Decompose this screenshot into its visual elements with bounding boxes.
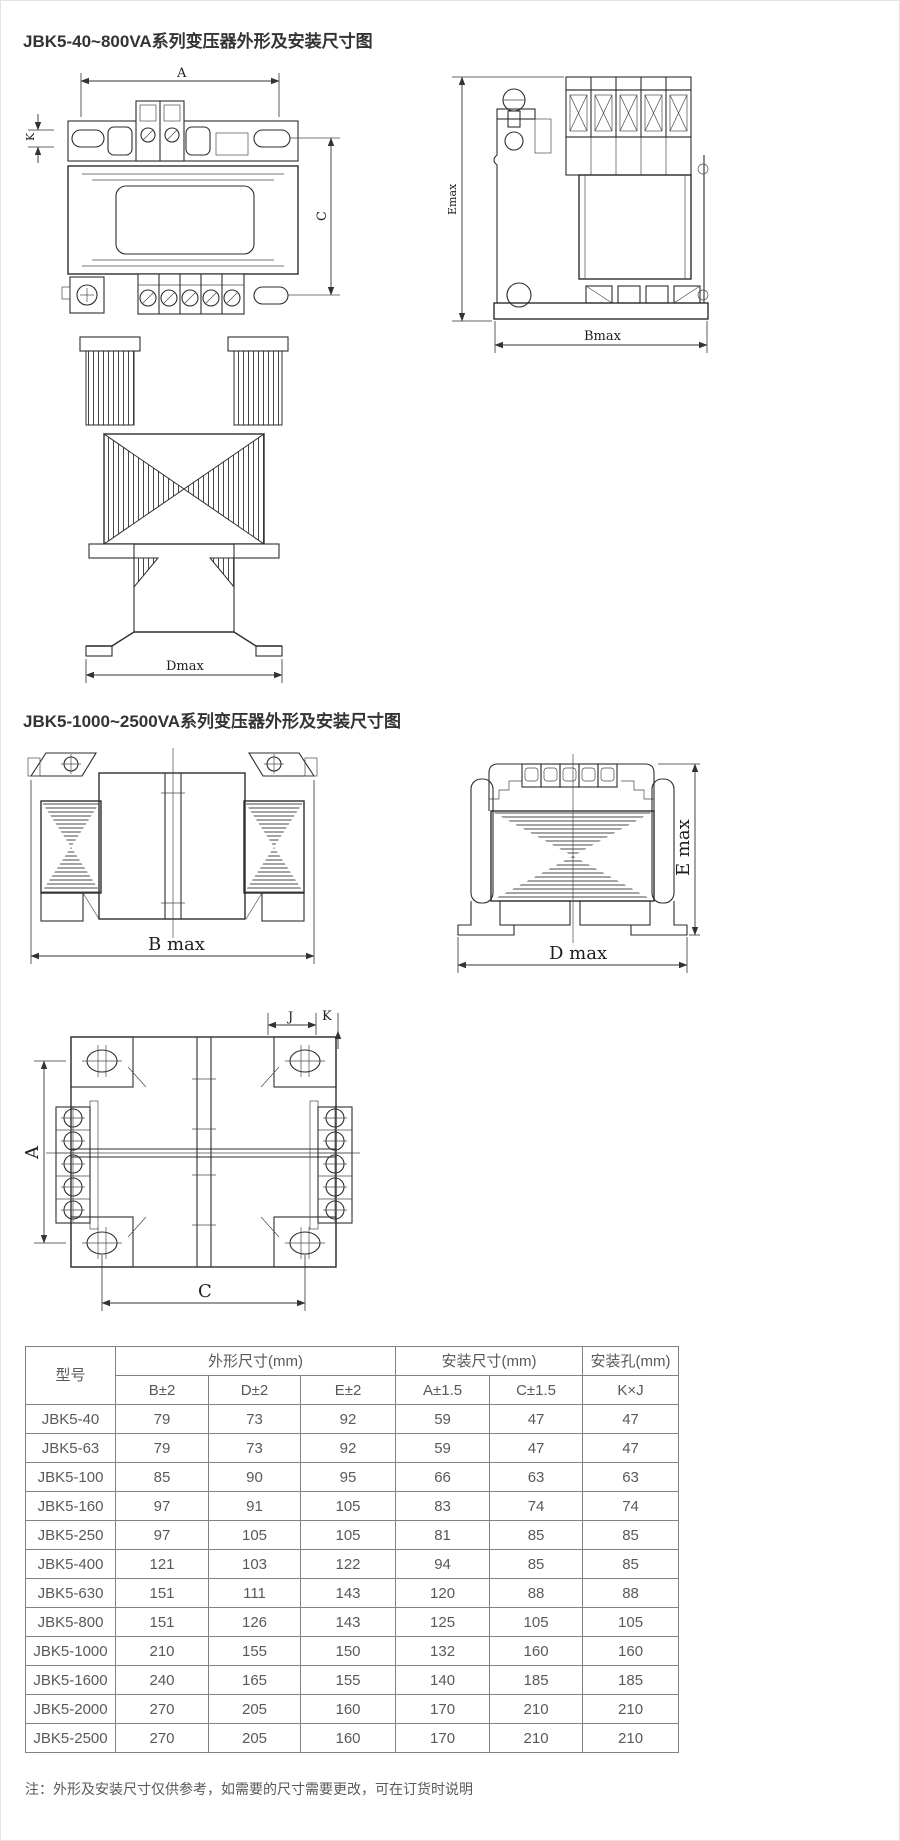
terminal-clamp-icons [570, 95, 687, 131]
value-cell-d: 103 [209, 1550, 301, 1579]
value-cell-e: 95 [301, 1463, 396, 1492]
value-cell-kxj: 47 [583, 1434, 679, 1463]
drawing-coil-view-small: Dmax [46, 329, 336, 694]
value-cell-b: 151 [116, 1608, 209, 1637]
value-cell-d: 205 [209, 1695, 301, 1724]
value-cell-d: 73 [209, 1434, 301, 1463]
value-cell-a: 120 [396, 1579, 490, 1608]
column-header-a: A±1.5 [396, 1376, 490, 1405]
value-cell-kxj: 105 [583, 1608, 679, 1637]
table-row: JBK5-630 151 111 143 120 88 88 [26, 1579, 679, 1608]
value-cell-d: 126 [209, 1608, 301, 1637]
value-cell-d: 90 [209, 1463, 301, 1492]
dim-label-dmax-lg: D max [549, 943, 607, 964]
model-cell: JBK5-160 [26, 1492, 116, 1521]
value-cell-kxj: 88 [583, 1579, 679, 1608]
table-row: JBK5-800 151 126 143 125 105 105 [26, 1608, 679, 1637]
value-cell-kxj: 63 [583, 1463, 679, 1492]
value-cell-d: 105 [209, 1521, 301, 1550]
terminal-strip-left [56, 1101, 98, 1229]
value-cell-kxj: 85 [583, 1521, 679, 1550]
column-header-model: 型号 [26, 1347, 116, 1405]
section1-title: JBK5-40~800VA系列变压器外形及安装尺寸图 [23, 27, 373, 52]
model-cell: JBK5-250 [26, 1521, 116, 1550]
value-cell-c: 47 [490, 1434, 583, 1463]
model-cell: JBK5-800 [26, 1608, 116, 1637]
value-cell-d: 91 [209, 1492, 301, 1521]
value-cell-e: 122 [301, 1550, 396, 1579]
model-cell: JBK5-400 [26, 1550, 116, 1579]
value-cell-c: 85 [490, 1550, 583, 1579]
dim-label-k2: K [322, 1009, 332, 1024]
value-cell-b: 85 [116, 1463, 209, 1492]
dimension-table: 型号 外形尺寸(mm) 安装尺寸(mm) 安装孔(mm) B±2 D±2 E±2… [25, 1346, 679, 1753]
value-cell-c: 88 [490, 1579, 583, 1608]
value-cell-a: 81 [396, 1521, 490, 1550]
value-cell-c: 185 [490, 1666, 583, 1695]
dim-label-bmax: Bmax [584, 329, 622, 344]
drawing-side-view-small: Emax [386, 57, 721, 367]
value-cell-e: 160 [301, 1695, 396, 1724]
value-cell-kxj: 74 [583, 1492, 679, 1521]
value-cell-a: 170 [396, 1695, 490, 1724]
value-cell-c: 160 [490, 1637, 583, 1666]
value-cell-e: 105 [301, 1492, 396, 1521]
value-cell-a: 59 [396, 1405, 490, 1434]
dim-label-emax: Emax [446, 183, 459, 215]
table-row: JBK5-1600 240 165 155 140 185 185 [26, 1666, 679, 1695]
value-cell-e: 105 [301, 1521, 396, 1550]
datasheet-page: JBK5-40~800VA系列变压器外形及安装尺寸图 A K [0, 0, 900, 1841]
value-cell-e: 150 [301, 1637, 396, 1666]
value-cell-b: 97 [116, 1521, 209, 1550]
value-cell-b: 79 [116, 1405, 209, 1434]
value-cell-a: 59 [396, 1434, 490, 1463]
value-cell-c: 105 [490, 1608, 583, 1637]
model-cell: JBK5-1000 [26, 1637, 116, 1666]
value-cell-d: 155 [209, 1637, 301, 1666]
value-cell-e: 160 [301, 1724, 396, 1753]
value-cell-kxj: 160 [583, 1637, 679, 1666]
table-row: JBK5-40 79 73 92 59 47 47 [26, 1405, 679, 1434]
value-cell-c: 63 [490, 1463, 583, 1492]
value-cell-c: 210 [490, 1695, 583, 1724]
value-cell-a: 83 [396, 1492, 490, 1521]
dim-label-c: C [315, 211, 330, 221]
column-header-d: D±2 [209, 1376, 301, 1405]
dim-label-c2: C [198, 1281, 212, 1302]
model-cell: JBK5-630 [26, 1579, 116, 1608]
column-header-e: E±2 [301, 1376, 396, 1405]
value-cell-a: 132 [396, 1637, 490, 1666]
group-header-outline: 外形尺寸(mm) [116, 1347, 396, 1376]
value-cell-e: 155 [301, 1666, 396, 1695]
value-cell-a: 94 [396, 1550, 490, 1579]
table-row: JBK5-100 85 90 95 66 63 63 [26, 1463, 679, 1492]
value-cell-b: 210 [116, 1637, 209, 1666]
dim-label-a2: A [22, 1145, 43, 1160]
table-sub-header-row: B±2 D±2 E±2 A±1.5 C±1.5 K×J [26, 1376, 679, 1405]
value-cell-kxj: 210 [583, 1724, 679, 1753]
value-cell-e: 92 [301, 1405, 396, 1434]
value-cell-d: 111 [209, 1579, 301, 1608]
value-cell-c: 85 [490, 1521, 583, 1550]
dim-label-emax-lg: E max [673, 819, 694, 876]
value-cell-d: 205 [209, 1724, 301, 1753]
value-cell-e: 92 [301, 1434, 396, 1463]
dim-label-j: J [286, 1010, 293, 1025]
dim-label-k: K [26, 132, 37, 141]
value-cell-d: 165 [209, 1666, 301, 1695]
value-cell-b: 270 [116, 1695, 209, 1724]
model-cell: JBK5-2000 [26, 1695, 116, 1724]
value-cell-d: 73 [209, 1405, 301, 1434]
value-cell-c: 74 [490, 1492, 583, 1521]
group-header-hole: 安装孔(mm) [583, 1347, 679, 1376]
value-cell-kxj: 210 [583, 1695, 679, 1724]
model-cell: JBK5-100 [26, 1463, 116, 1492]
table-row: JBK5-2500 270 205 160 170 210 210 [26, 1724, 679, 1753]
table-row: JBK5-160 97 91 105 83 74 74 [26, 1492, 679, 1521]
value-cell-kxj: 47 [583, 1405, 679, 1434]
table-group-header-row: 型号 外形尺寸(mm) 安装尺寸(mm) 安装孔(mm) [26, 1347, 679, 1376]
model-cell: JBK5-63 [26, 1434, 116, 1463]
value-cell-b: 240 [116, 1666, 209, 1695]
terminal-row [522, 764, 617, 787]
value-cell-b: 121 [116, 1550, 209, 1579]
value-cell-b: 97 [116, 1492, 209, 1521]
value-cell-c: 210 [490, 1724, 583, 1753]
column-header-kxj: K×J [583, 1376, 679, 1405]
column-header-b: B±2 [116, 1376, 209, 1405]
mounting-hole-icons [82, 1045, 325, 1259]
value-cell-a: 170 [396, 1724, 490, 1753]
dim-label-dmax: Dmax [166, 659, 205, 674]
terminal-strip-right [310, 1101, 352, 1229]
value-cell-b: 151 [116, 1579, 209, 1608]
drawing-side-view-large: D max E max [456, 751, 704, 983]
section2-title: JBK5-1000~2500VA系列变压器外形及安装尺寸图 [23, 707, 401, 732]
drawing-front-view-large: B max [26, 746, 356, 976]
model-cell: JBK5-2500 [26, 1724, 116, 1753]
value-cell-b: 79 [116, 1434, 209, 1463]
model-cell: JBK5-1600 [26, 1666, 116, 1695]
value-cell-e: 143 [301, 1608, 396, 1637]
table-row: JBK5-2000 270 205 160 170 210 210 [26, 1695, 679, 1724]
table-row: JBK5-250 97 105 105 81 85 85 [26, 1521, 679, 1550]
drawing-front-view-small: A K [26, 59, 361, 324]
column-header-c: C±1.5 [490, 1376, 583, 1405]
dim-label-bmax-lg: B max [148, 934, 205, 955]
footnote: 注：外形及安装尺寸仅供参考，如需要的尺寸需要更改，可在订货时说明 [25, 1779, 473, 1799]
group-header-mounting: 安装尺寸(mm) [396, 1347, 583, 1376]
model-cell: JBK5-40 [26, 1405, 116, 1434]
value-cell-kxj: 185 [583, 1666, 679, 1695]
value-cell-a: 125 [396, 1608, 490, 1637]
table-row: JBK5-400 121 103 122 94 85 85 [26, 1550, 679, 1579]
table-row: JBK5-1000 210 155 150 132 160 160 [26, 1637, 679, 1666]
table-row: JBK5-63 79 73 92 59 47 47 [26, 1434, 679, 1463]
value-cell-kxj: 85 [583, 1550, 679, 1579]
value-cell-b: 270 [116, 1724, 209, 1753]
value-cell-a: 140 [396, 1666, 490, 1695]
drawing-top-view-large: J K [16, 1009, 366, 1324]
value-cell-c: 47 [490, 1405, 583, 1434]
value-cell-e: 143 [301, 1579, 396, 1608]
dim-label-a: A [176, 66, 187, 81]
value-cell-a: 66 [396, 1463, 490, 1492]
